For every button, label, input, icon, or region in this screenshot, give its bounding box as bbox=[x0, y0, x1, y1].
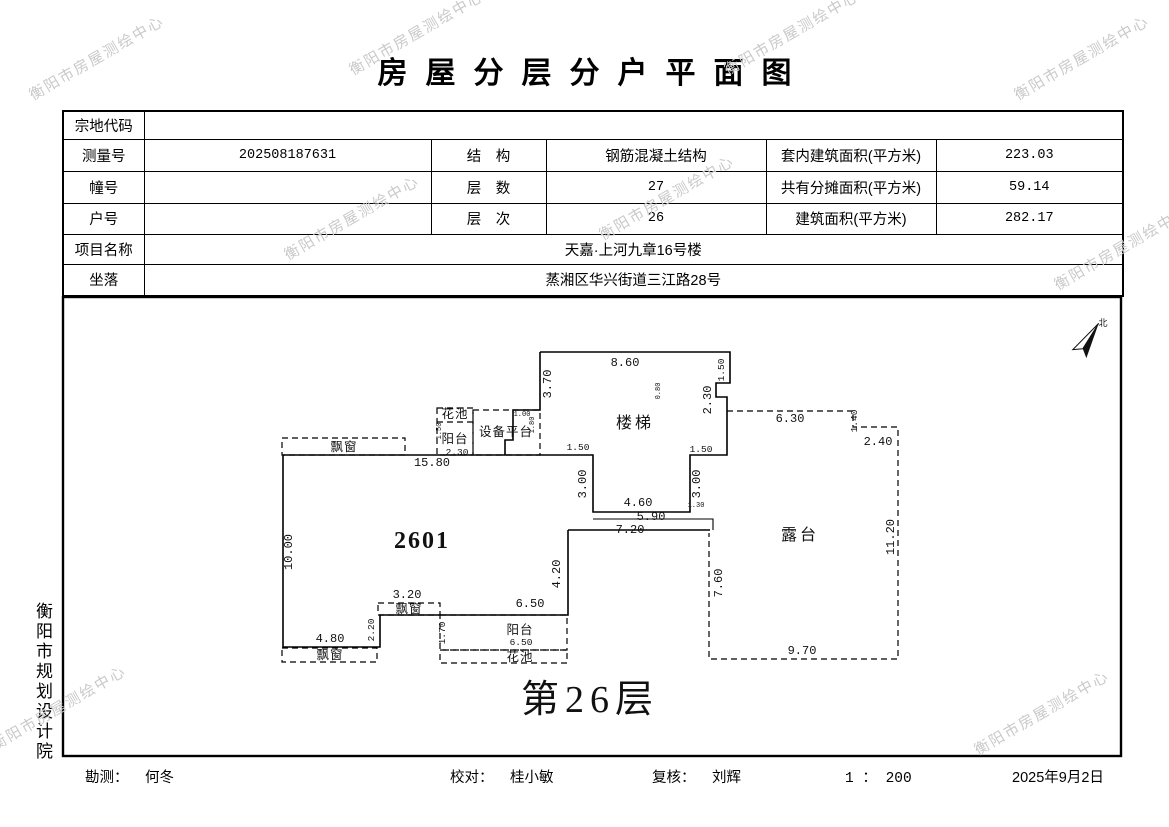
plan-annotation: 3.00 bbox=[690, 470, 704, 499]
plan-annotation: 飘窗 bbox=[395, 602, 422, 616]
plan-annotation: 10.00 bbox=[282, 534, 296, 570]
plan-annotation: 1.00 bbox=[514, 411, 531, 419]
plan-annotation: 6.50 bbox=[516, 597, 545, 611]
plan-annotation: 1.50 bbox=[436, 423, 444, 440]
plan-annotation: 1.30 bbox=[688, 502, 705, 510]
plan-annotation: 0.80 bbox=[655, 383, 663, 400]
plan-annotation: 5.90 bbox=[637, 510, 666, 524]
plan-annotation: 1.50 bbox=[567, 442, 590, 453]
plan-annotation: 2.20 bbox=[366, 618, 377, 641]
plan-annotation: 9.70 bbox=[788, 644, 817, 658]
plan-annotation: 7.60 bbox=[712, 569, 726, 598]
plan-annotation: 阳台 bbox=[506, 622, 533, 637]
plan-annotation: 2.30 bbox=[701, 386, 715, 415]
plan-annotation: 4.60 bbox=[624, 496, 653, 510]
plan-annotation: 飘窗 bbox=[316, 648, 343, 662]
plan-annotation: 2.30 bbox=[446, 447, 469, 458]
plan-annotation: 6.30 bbox=[776, 412, 805, 426]
plan-annotation: 阳台 bbox=[441, 431, 468, 446]
floor-plan-drawing: 楼梯露台2601设备平台阳台花池飘窗飘窗飘窗阳台花池第26层北8.603.701… bbox=[0, 0, 1169, 827]
balcony-bottom bbox=[440, 615, 567, 650]
plan-annotation: 4.80 bbox=[316, 632, 345, 646]
plan-annotation: 11.20 bbox=[884, 519, 898, 555]
plan-annotation: 2.40 bbox=[864, 435, 893, 449]
plan-annotation: 1.50 bbox=[716, 358, 727, 381]
plan-annotation: 花池 bbox=[441, 406, 468, 421]
planter-bottom bbox=[440, 650, 567, 663]
plan-annotation: 第26层 bbox=[521, 679, 659, 721]
plan-annotation: 3.70 bbox=[541, 370, 555, 399]
plan-annotation: 花池 bbox=[506, 649, 533, 664]
plan-annotation: 1.70 bbox=[437, 621, 448, 644]
plan-annotation: 1.80 bbox=[529, 417, 537, 434]
plan-annotation: 15.80 bbox=[414, 456, 450, 470]
plan-annotation: 8.60 bbox=[611, 356, 640, 370]
plan-annotation: 7.20 bbox=[616, 523, 645, 537]
plan-annotation: 露台 bbox=[781, 526, 819, 544]
plan-annotation: 6.50 bbox=[510, 637, 533, 648]
plan-annotation: 3.00 bbox=[576, 470, 590, 499]
plan-annotation: 4.20 bbox=[550, 560, 564, 589]
plan-annotation: 1.50 bbox=[690, 444, 713, 455]
plan-annotation: 飘窗 bbox=[330, 440, 357, 454]
plan-annotation: 设备平台 bbox=[479, 424, 533, 439]
plan-annotation: 楼梯 bbox=[616, 414, 654, 432]
plan-annotation: 北 bbox=[1098, 318, 1107, 329]
plan-annotation: 3.20 bbox=[393, 588, 422, 602]
floorplan-document: { "title": "房屋分层分户平面图", "watermark": { "… bbox=[0, 0, 1169, 827]
plan-annotation: 2601 bbox=[394, 528, 450, 554]
plan-annotation: 1.40 bbox=[849, 409, 860, 432]
institute-vertical-label: 衡阳市规划设计院 bbox=[30, 602, 55, 766]
